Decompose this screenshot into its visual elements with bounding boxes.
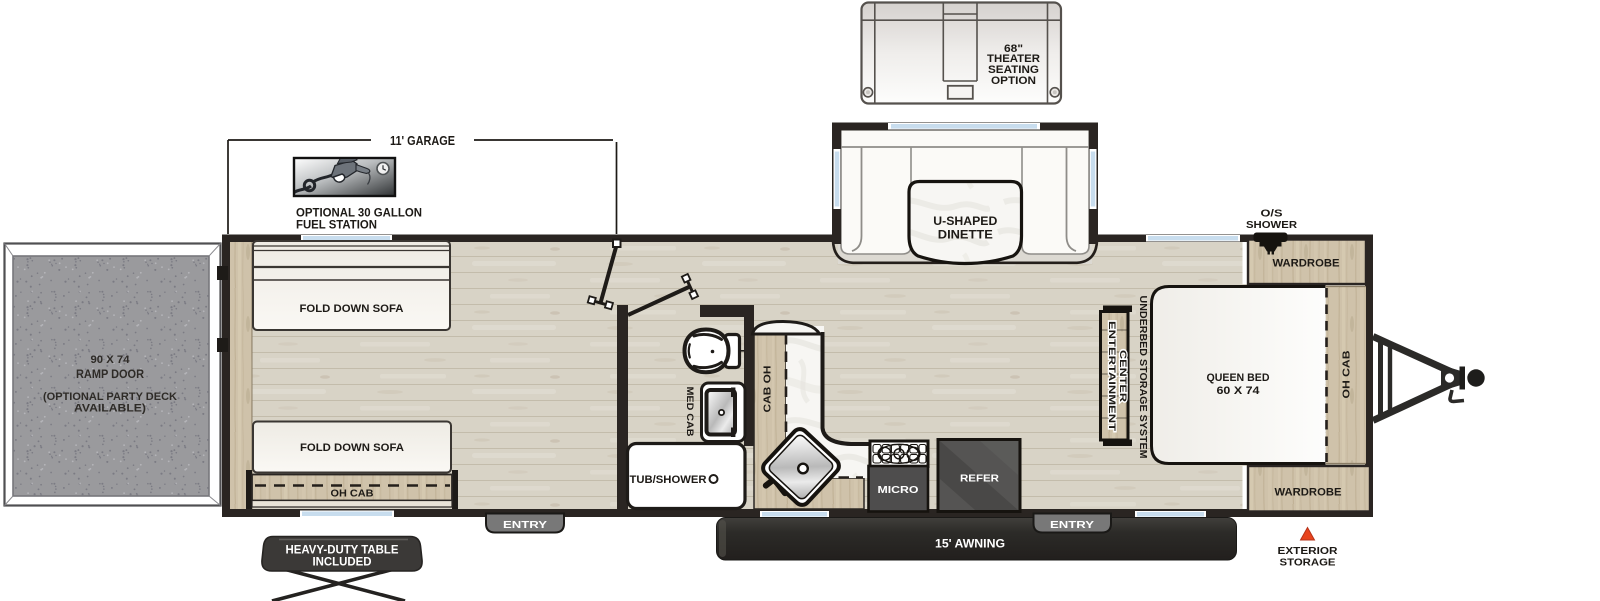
svg-text:ENTRY: ENTRY — [503, 519, 547, 531]
svg-text:ENTRY: ENTRY — [1050, 519, 1094, 531]
svg-text:STORAGE: STORAGE — [1280, 557, 1336, 569]
svg-text:UNDERBED STORAGE SYSTEM: UNDERBED STORAGE SYSTEM — [1137, 296, 1148, 459]
svg-text:FUEL STATION: FUEL STATION — [296, 220, 377, 232]
svg-text:MICRO: MICRO — [878, 484, 919, 496]
svg-text:FOLD DOWN SOFA: FOLD DOWN SOFA — [300, 442, 404, 454]
svg-text:FOLD DOWN SOFA: FOLD DOWN SOFA — [300, 303, 404, 315]
svg-text:REFER: REFER — [960, 473, 999, 485]
svg-text:MED CAB: MED CAB — [684, 387, 695, 437]
svg-text:INCLUDED: INCLUDED — [313, 555, 372, 569]
svg-text:60 X 74: 60 X 74 — [1217, 385, 1261, 397]
svg-text:OH CAB: OH CAB — [1342, 351, 1353, 399]
svg-text:SHOWER: SHOWER — [1246, 219, 1297, 231]
svg-text:OPTION: OPTION — [991, 75, 1036, 87]
svg-text:RAMP DOOR: RAMP DOOR — [76, 369, 145, 381]
svg-text:OH CAB: OH CAB — [331, 489, 374, 500]
svg-text:90 X 74: 90 X 74 — [91, 354, 131, 366]
svg-text:O/S: O/S — [1261, 208, 1283, 220]
svg-text:11' GARAGE: 11' GARAGE — [390, 133, 455, 148]
svg-text:ENTERTAINMENT: ENTERTAINMENT — [1106, 321, 1117, 431]
svg-text:AVAILABLE): AVAILABLE) — [74, 403, 146, 415]
svg-text:U-SHAPED: U-SHAPED — [933, 214, 997, 228]
svg-text:CENTER: CENTER — [1117, 350, 1128, 402]
svg-text:TUB/SHOWER: TUB/SHOWER — [630, 474, 707, 486]
svg-text:CAB OH: CAB OH — [763, 366, 774, 413]
svg-text:WARDROBE: WARDROBE — [1275, 487, 1342, 499]
svg-text:WARDROBE: WARDROBE — [1273, 258, 1340, 270]
svg-text:OPTIONAL 30 GALLON: OPTIONAL 30 GALLON — [296, 208, 422, 220]
svg-text:15' AWNING: 15' AWNING — [935, 537, 1005, 551]
svg-text:QUEEN BED: QUEEN BED — [1207, 372, 1270, 384]
svg-text:(OPTIONAL PARTY DECK: (OPTIONAL PARTY DECK — [43, 391, 177, 403]
svg-text:EXTERIOR: EXTERIOR — [1278, 545, 1338, 557]
svg-text:DINETTE: DINETTE — [938, 228, 993, 242]
